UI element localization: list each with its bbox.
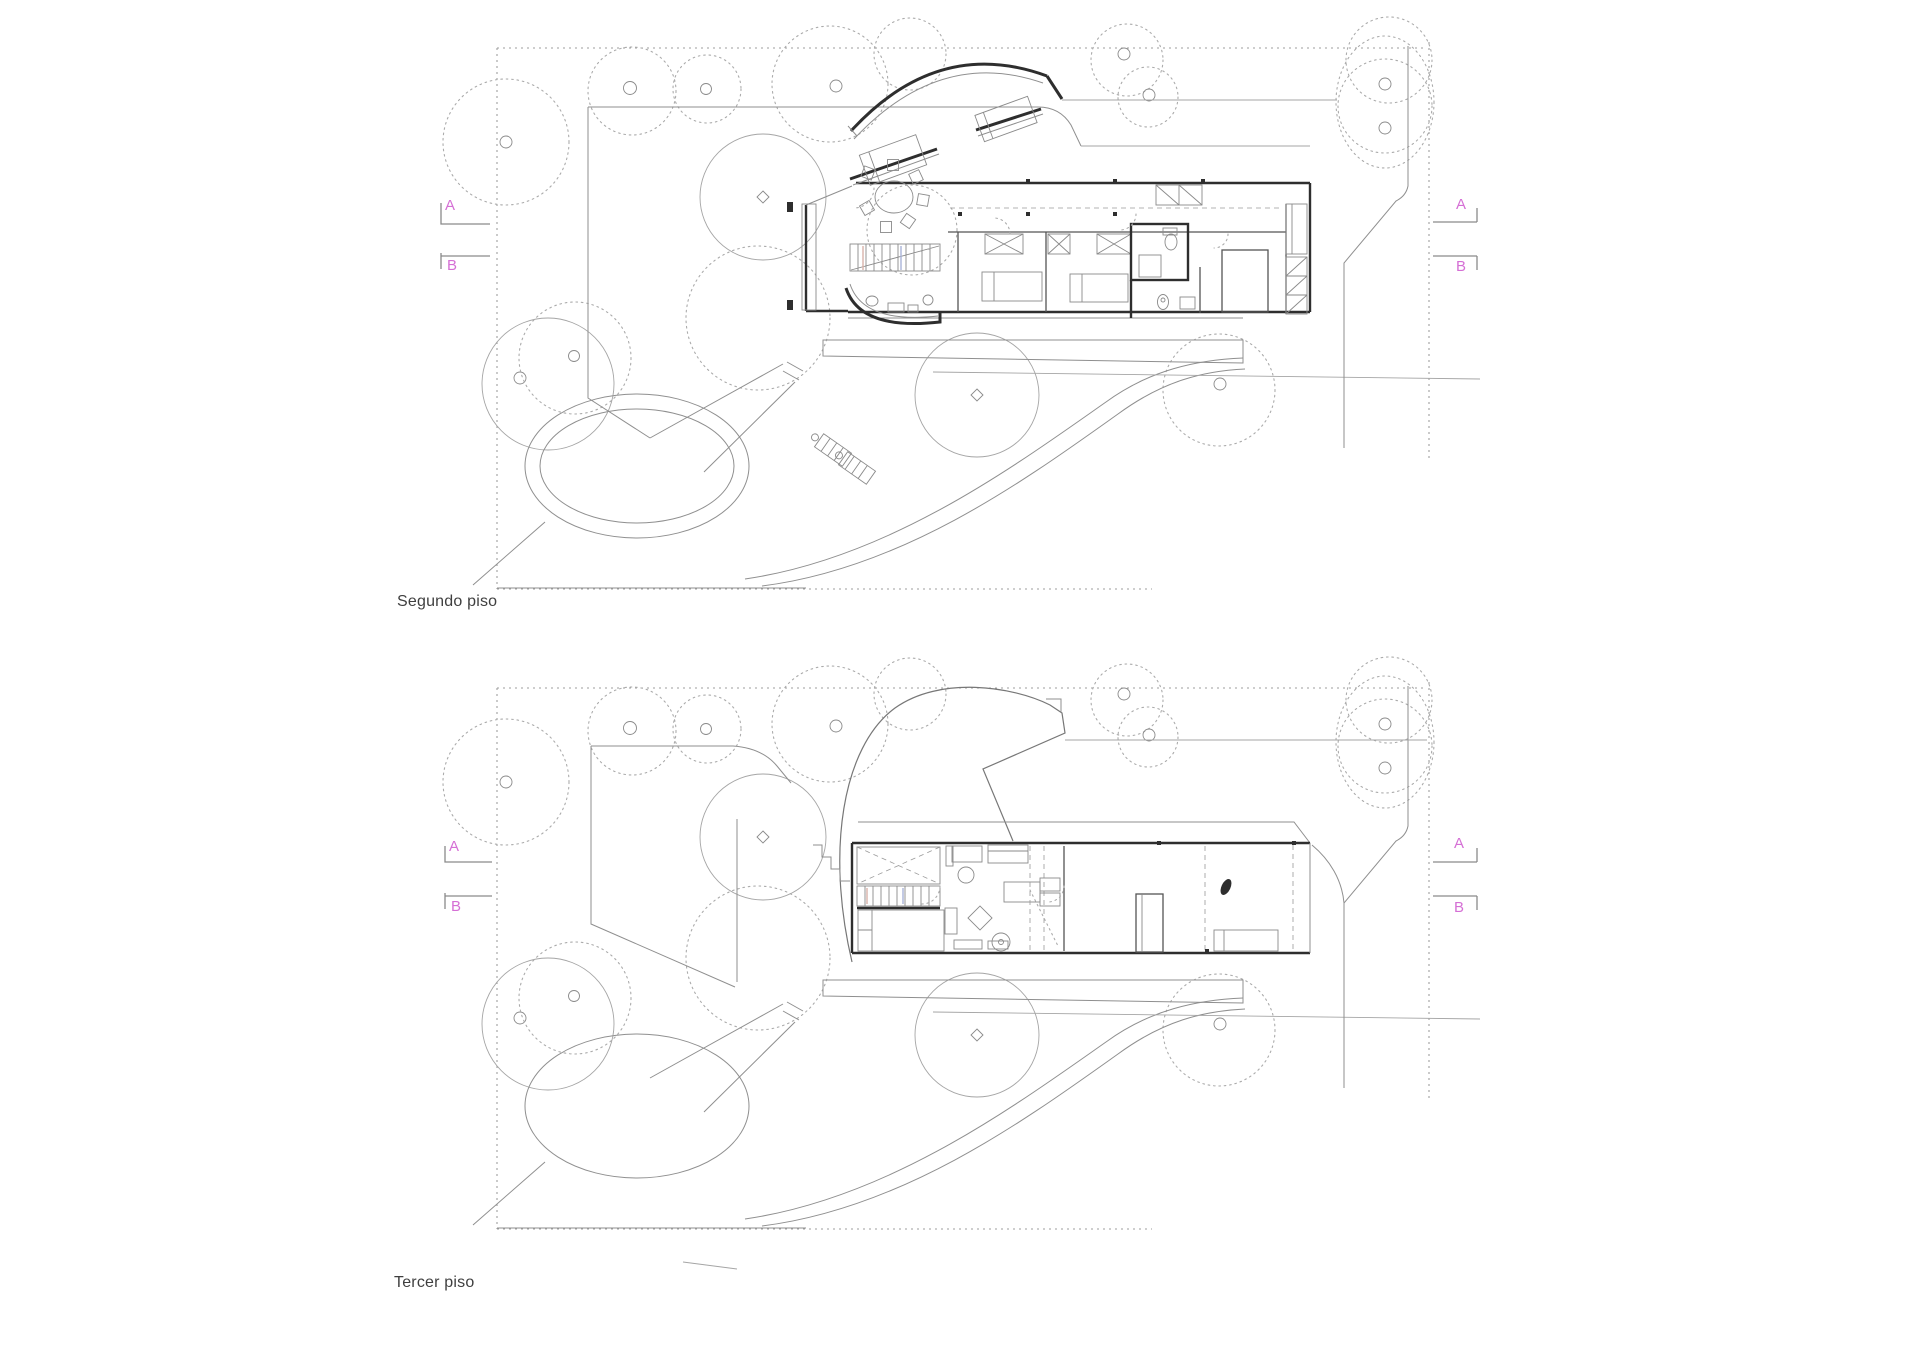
living-furniture: [945, 845, 1040, 951]
plan-label-segundo: Segundo piso: [397, 593, 497, 611]
staircase-segundo: [850, 244, 940, 271]
closets: [985, 185, 1202, 254]
plans-drawing: [0, 0, 1920, 1358]
section-marker-a-right-tercer: A: [1454, 835, 1464, 852]
building-segundo: [787, 64, 1310, 323]
section-marker-a-right-segundo: A: [1456, 196, 1466, 213]
dining-table: [875, 181, 913, 213]
roof-curve: [840, 687, 1427, 962]
building-tercer: [813, 822, 1344, 953]
plan-tercer-piso: [443, 657, 1480, 1269]
section-marker-b-right-segundo: B: [1456, 258, 1466, 275]
plan-segundo-piso: [443, 17, 1480, 589]
floor-plan-sheet: Segundo piso Tercer piso A B A B A B A B: [0, 0, 1920, 1358]
section-marker-b-left-tercer: B: [451, 898, 461, 915]
section-marker-a-left-segundo: A: [445, 197, 455, 214]
bathroom: [1131, 224, 1195, 318]
section-marker-a-left-tercer: A: [449, 838, 459, 855]
staircase-tercer: [857, 886, 940, 908]
section-marker-b-left-segundo: B: [447, 257, 457, 274]
section-marker-b-right-tercer: B: [1454, 899, 1464, 916]
section-marker-brackets: [441, 203, 1477, 910]
plan-label-tercer: Tercer piso: [394, 1274, 474, 1292]
loungers: [808, 429, 876, 484]
